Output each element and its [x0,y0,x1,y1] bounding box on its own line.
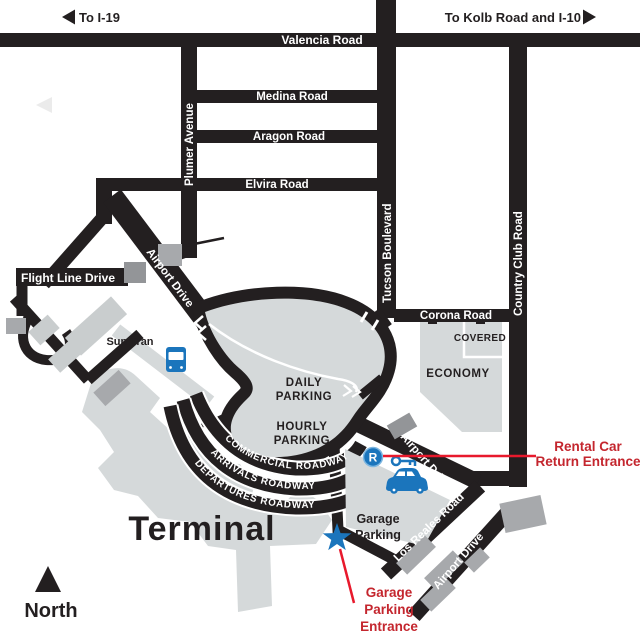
garage-parking-label: Garage [356,512,399,526]
terminal-label: Terminal [128,510,275,548]
north-arrow-icon [35,566,61,592]
rental-annotation-label: Return Entrance [535,454,640,469]
road-elvira [96,178,378,191]
rental-annotation-label: Rental Car [554,439,622,454]
road-label-plumer: Plumer Avenue [184,103,196,186]
direction-markers: To I-19 To Kolb Road and I-10 [62,10,596,26]
airport-map: Valencia Road Medina Road Aragon Road El… [0,0,640,640]
road-label-valencia: Valencia Road [281,33,362,47]
garage-annotation-label: Entrance [360,619,418,634]
hourly-parking-label: HOURLY [276,421,327,433]
road-label-country-club: Country Club Road [513,211,525,316]
rental-return-badge: R [364,448,383,467]
building [499,495,546,533]
road-tucson-blvd-north [376,0,396,33]
daily-parking-label: PARKING [276,391,332,403]
compass: North [24,566,77,622]
garage-annotation-label: Parking [364,602,414,617]
faint-arrow-icon [36,97,52,113]
bus-icon [166,347,186,372]
road-label-aragon: Aragon Road [253,131,325,143]
road-label-corona: Corona Road [420,310,492,322]
walkway-arrow-icon [137,366,147,376]
daily-parking-label: DAILY [286,377,322,389]
road-label-medina: Medina Road [256,91,328,103]
road-labels: Valencia Road Medina Road Aragon Road El… [21,33,492,322]
east-arrow-icon [583,10,596,25]
east-direction-label: To Kolb Road and I-10 [445,10,581,25]
road-label-tucson: Tucson Boulevard [382,204,394,303]
economy-label: ECONOMY [426,368,490,380]
road-label-flight-line: Flight Line Drive [21,271,115,285]
garage-parking-label: Parking [355,528,401,542]
garage-annotation-line [340,549,354,603]
covered-label: COVERED [454,333,506,344]
building [6,318,26,334]
west-arrow-icon [62,10,75,25]
building [124,262,146,283]
garage-annotation-label: Garage [366,585,413,600]
road-label-elvira: Elvira Road [245,179,308,191]
west-direction-label: To I-19 [79,10,120,25]
sun-tran-label: Sun Tran [106,336,153,348]
north-label: North [24,600,77,622]
hourly-parking-label: PARKING [274,435,330,447]
rental-r-label: R [369,451,378,465]
